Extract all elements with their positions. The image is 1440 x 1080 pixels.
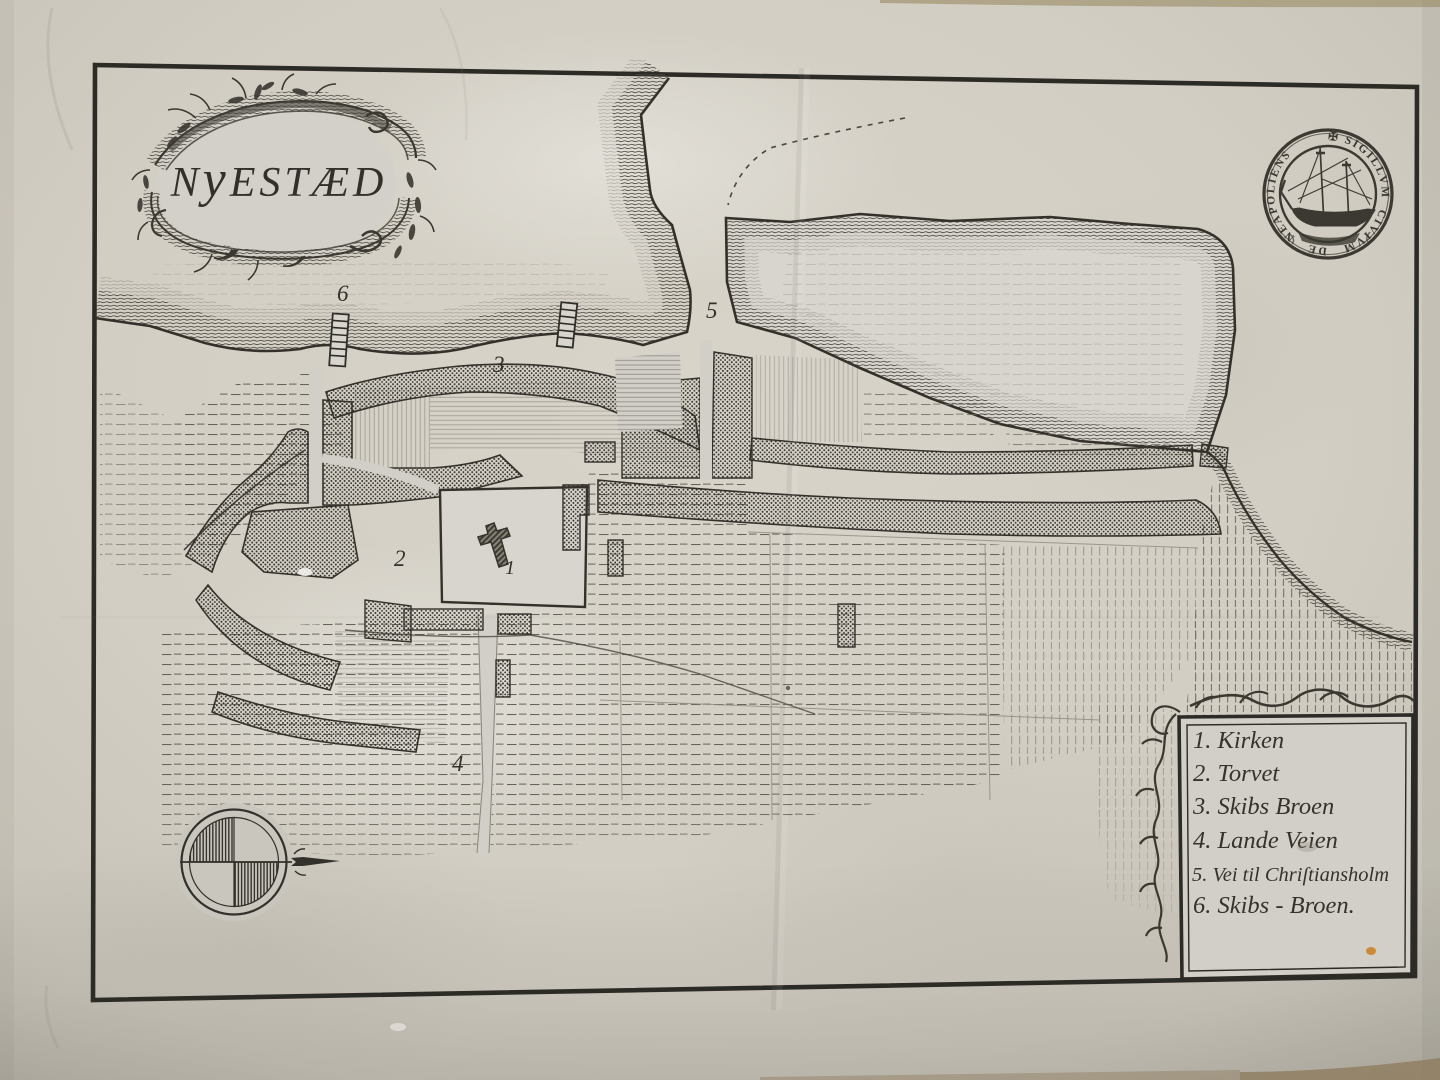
svg-text:5. Vei til Chriſtiansholm: 5. Vei til Chriſtiansholm (1192, 864, 1389, 886)
svg-text:1: 1 (505, 557, 515, 579)
svg-text:3. Skibs Broen: 3. Skibs Broen (1192, 793, 1334, 820)
svg-text:NyESTÆD: NyESTÆD (170, 151, 388, 208)
svg-text:6. Skibs - Broen.: 6. Skibs - Broen. (1193, 892, 1355, 919)
svg-text:2: 2 (394, 546, 406, 571)
svg-text:5: 5 (706, 298, 718, 323)
svg-text:3: 3 (492, 352, 505, 377)
svg-text:4: 4 (452, 751, 464, 776)
svg-text:4. Lande Veien: 4. Lande Veien (1193, 827, 1338, 854)
svg-text:6: 6 (337, 281, 349, 306)
svg-text:1. Kirken: 1. Kirken (1193, 727, 1284, 754)
svg-text:2. Torvet: 2. Torvet (1193, 760, 1280, 787)
